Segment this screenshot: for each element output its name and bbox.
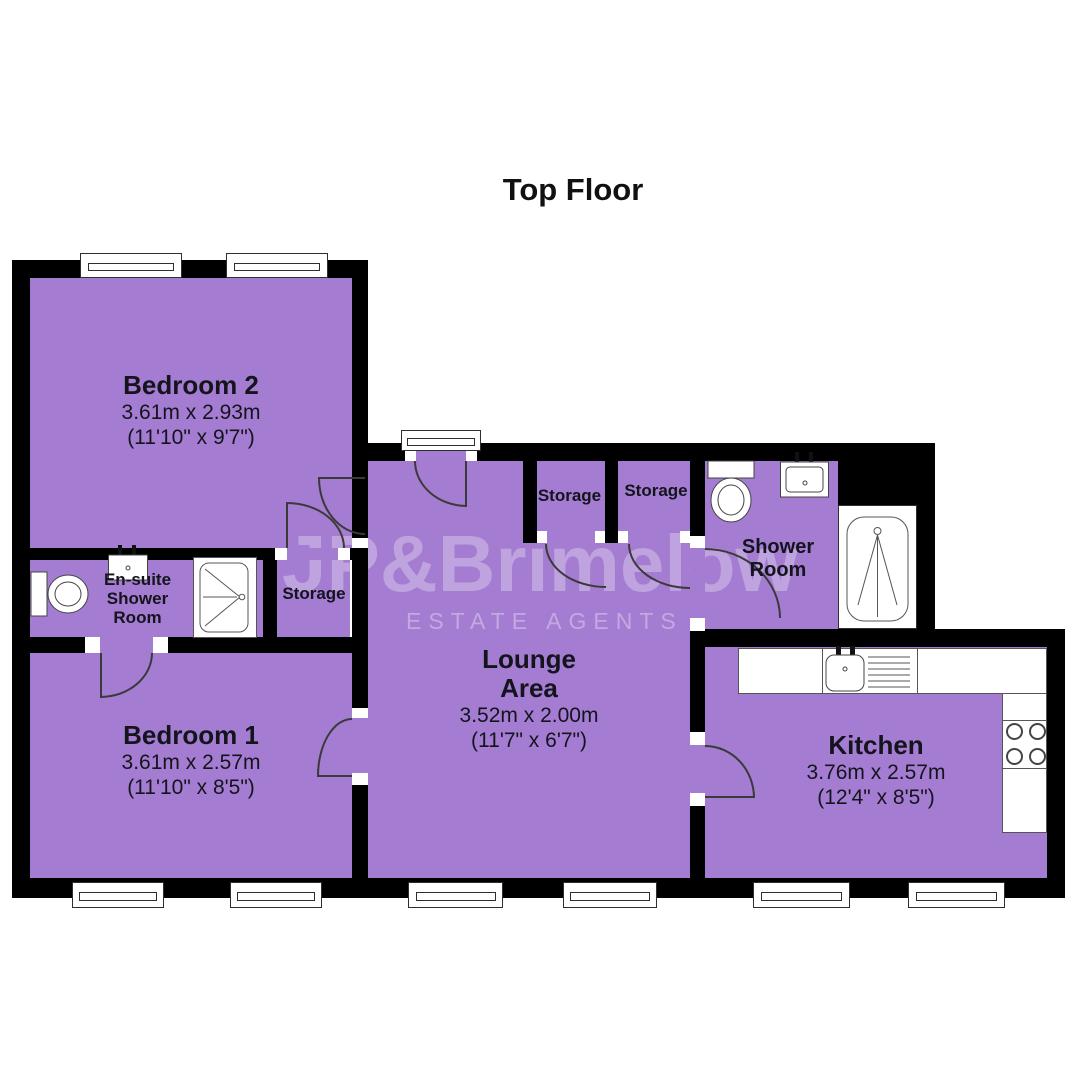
room-label-bedroom2: Bedroom 2 3.61m x 2.93m (11'10" x 9'7") (30, 371, 352, 450)
wall-segment (1047, 629, 1065, 878)
door-leaf (465, 461, 467, 507)
wall-segment (168, 637, 368, 653)
window-pane (570, 892, 649, 901)
shower-enclosure-icon (838, 505, 917, 629)
window-pane (761, 892, 843, 901)
room-label-storage-ensuite: Storage (264, 584, 364, 603)
window-pane (234, 263, 320, 271)
room-label-storage-right: Storage (618, 481, 694, 500)
window (230, 882, 322, 908)
wall-segment (12, 637, 85, 653)
wall-segment (917, 443, 935, 647)
window-pane (88, 263, 174, 271)
window (80, 253, 182, 278)
counter-divider (1002, 720, 1047, 721)
room-label-kitchen: Kitchen 3.76m x 2.57m (12'4" x 8'5") (705, 731, 1047, 810)
room-label-storage-left: Storage (532, 486, 607, 505)
door-jamb (153, 637, 168, 653)
wall-segment (352, 785, 368, 878)
wall-segment (12, 260, 30, 898)
door-opening (352, 718, 368, 773)
window (753, 882, 850, 908)
door-opening (690, 548, 705, 618)
door-jamb (595, 531, 605, 543)
window (401, 430, 481, 451)
room-dims-metric: 3.61m x 2.93m (30, 400, 352, 425)
wall-segment (352, 560, 368, 708)
window-pane (407, 438, 474, 445)
kitchen-sink-icon (824, 644, 868, 692)
counter-divider (917, 648, 918, 694)
room-name: Bedroom 1 (30, 721, 352, 750)
room-name: Lounge (368, 645, 690, 674)
door-opening (690, 745, 705, 793)
floor-plan: Top Floor JP&Brimelow ESTATE AGENTS (0, 0, 1080, 1080)
room-label-ensuite: En-suite Shower Room (80, 570, 195, 627)
door-leaf (318, 477, 365, 479)
shower-tray-icon (193, 557, 257, 638)
room-label-lounge: Lounge Area 3.52m x 2.00m (11'7" x 6'7") (368, 645, 690, 753)
door-jamb (690, 793, 705, 806)
room-dims-metric: 3.76m x 2.57m (705, 760, 1047, 785)
door-jamb (680, 531, 690, 543)
door-jamb (352, 538, 368, 548)
window (908, 882, 1005, 908)
room-dims-imperial: (12'4" x 8'5") (705, 785, 1047, 810)
window-pane (237, 892, 314, 901)
drainer-icon (866, 653, 912, 691)
room-name: Area (368, 674, 690, 703)
window (563, 882, 657, 908)
room-name: Kitchen (705, 731, 1047, 760)
wall-segment (690, 806, 705, 878)
door-jamb (352, 773, 368, 785)
wall-segment (368, 443, 405, 461)
window-pane (916, 892, 998, 901)
door-opening (100, 637, 153, 653)
window (226, 253, 328, 278)
room-dims-imperial: (11'7" x 6'7") (368, 728, 690, 753)
room-label-shower-room: Shower Room (708, 536, 848, 582)
room-name: Storage (618, 481, 694, 500)
wall-segment (705, 629, 1065, 647)
window (408, 882, 503, 908)
door-jamb (537, 531, 547, 543)
window-pane (79, 892, 156, 901)
door-jamb (85, 637, 100, 653)
wall-segment (350, 548, 368, 560)
door-jamb (338, 548, 350, 560)
room-name: Room (708, 559, 848, 582)
counter-divider (822, 648, 823, 694)
wall-segment (690, 631, 705, 732)
door-jamb (352, 708, 368, 718)
room-name: Bedroom 2 (30, 371, 352, 400)
room-name: Storage (532, 486, 607, 505)
window (72, 882, 164, 908)
window-pane (416, 892, 496, 901)
room-dims-imperial: (11'10" x 8'5") (30, 775, 352, 800)
toilet-icon (706, 460, 756, 524)
door-leaf (286, 502, 288, 548)
room-name: En-suite (80, 570, 195, 589)
room-name: Room (80, 608, 195, 627)
room-name: Shower (80, 589, 195, 608)
door-leaf (100, 653, 102, 698)
room-dims-imperial: (11'10" x 9'7") (30, 425, 352, 450)
room-dims-metric: 3.52m x 2.00m (368, 703, 690, 728)
room-name: Storage (264, 584, 364, 603)
room-dims-metric: 3.61m x 2.57m (30, 750, 352, 775)
door-jamb (618, 531, 628, 543)
watermark-tagline: ESTATE AGENTS (406, 608, 683, 635)
door-jamb (275, 548, 287, 560)
door-jamb (690, 536, 705, 548)
sink-icon (780, 452, 830, 498)
plan-title: Top Floor (373, 172, 773, 208)
room-label-bedroom1: Bedroom 1 3.61m x 2.57m (11'10" x 8'5") (30, 721, 352, 800)
door-jamb (690, 732, 705, 745)
door-jamb (690, 618, 705, 631)
door-opening (287, 548, 338, 560)
room-name: Shower (708, 536, 848, 559)
